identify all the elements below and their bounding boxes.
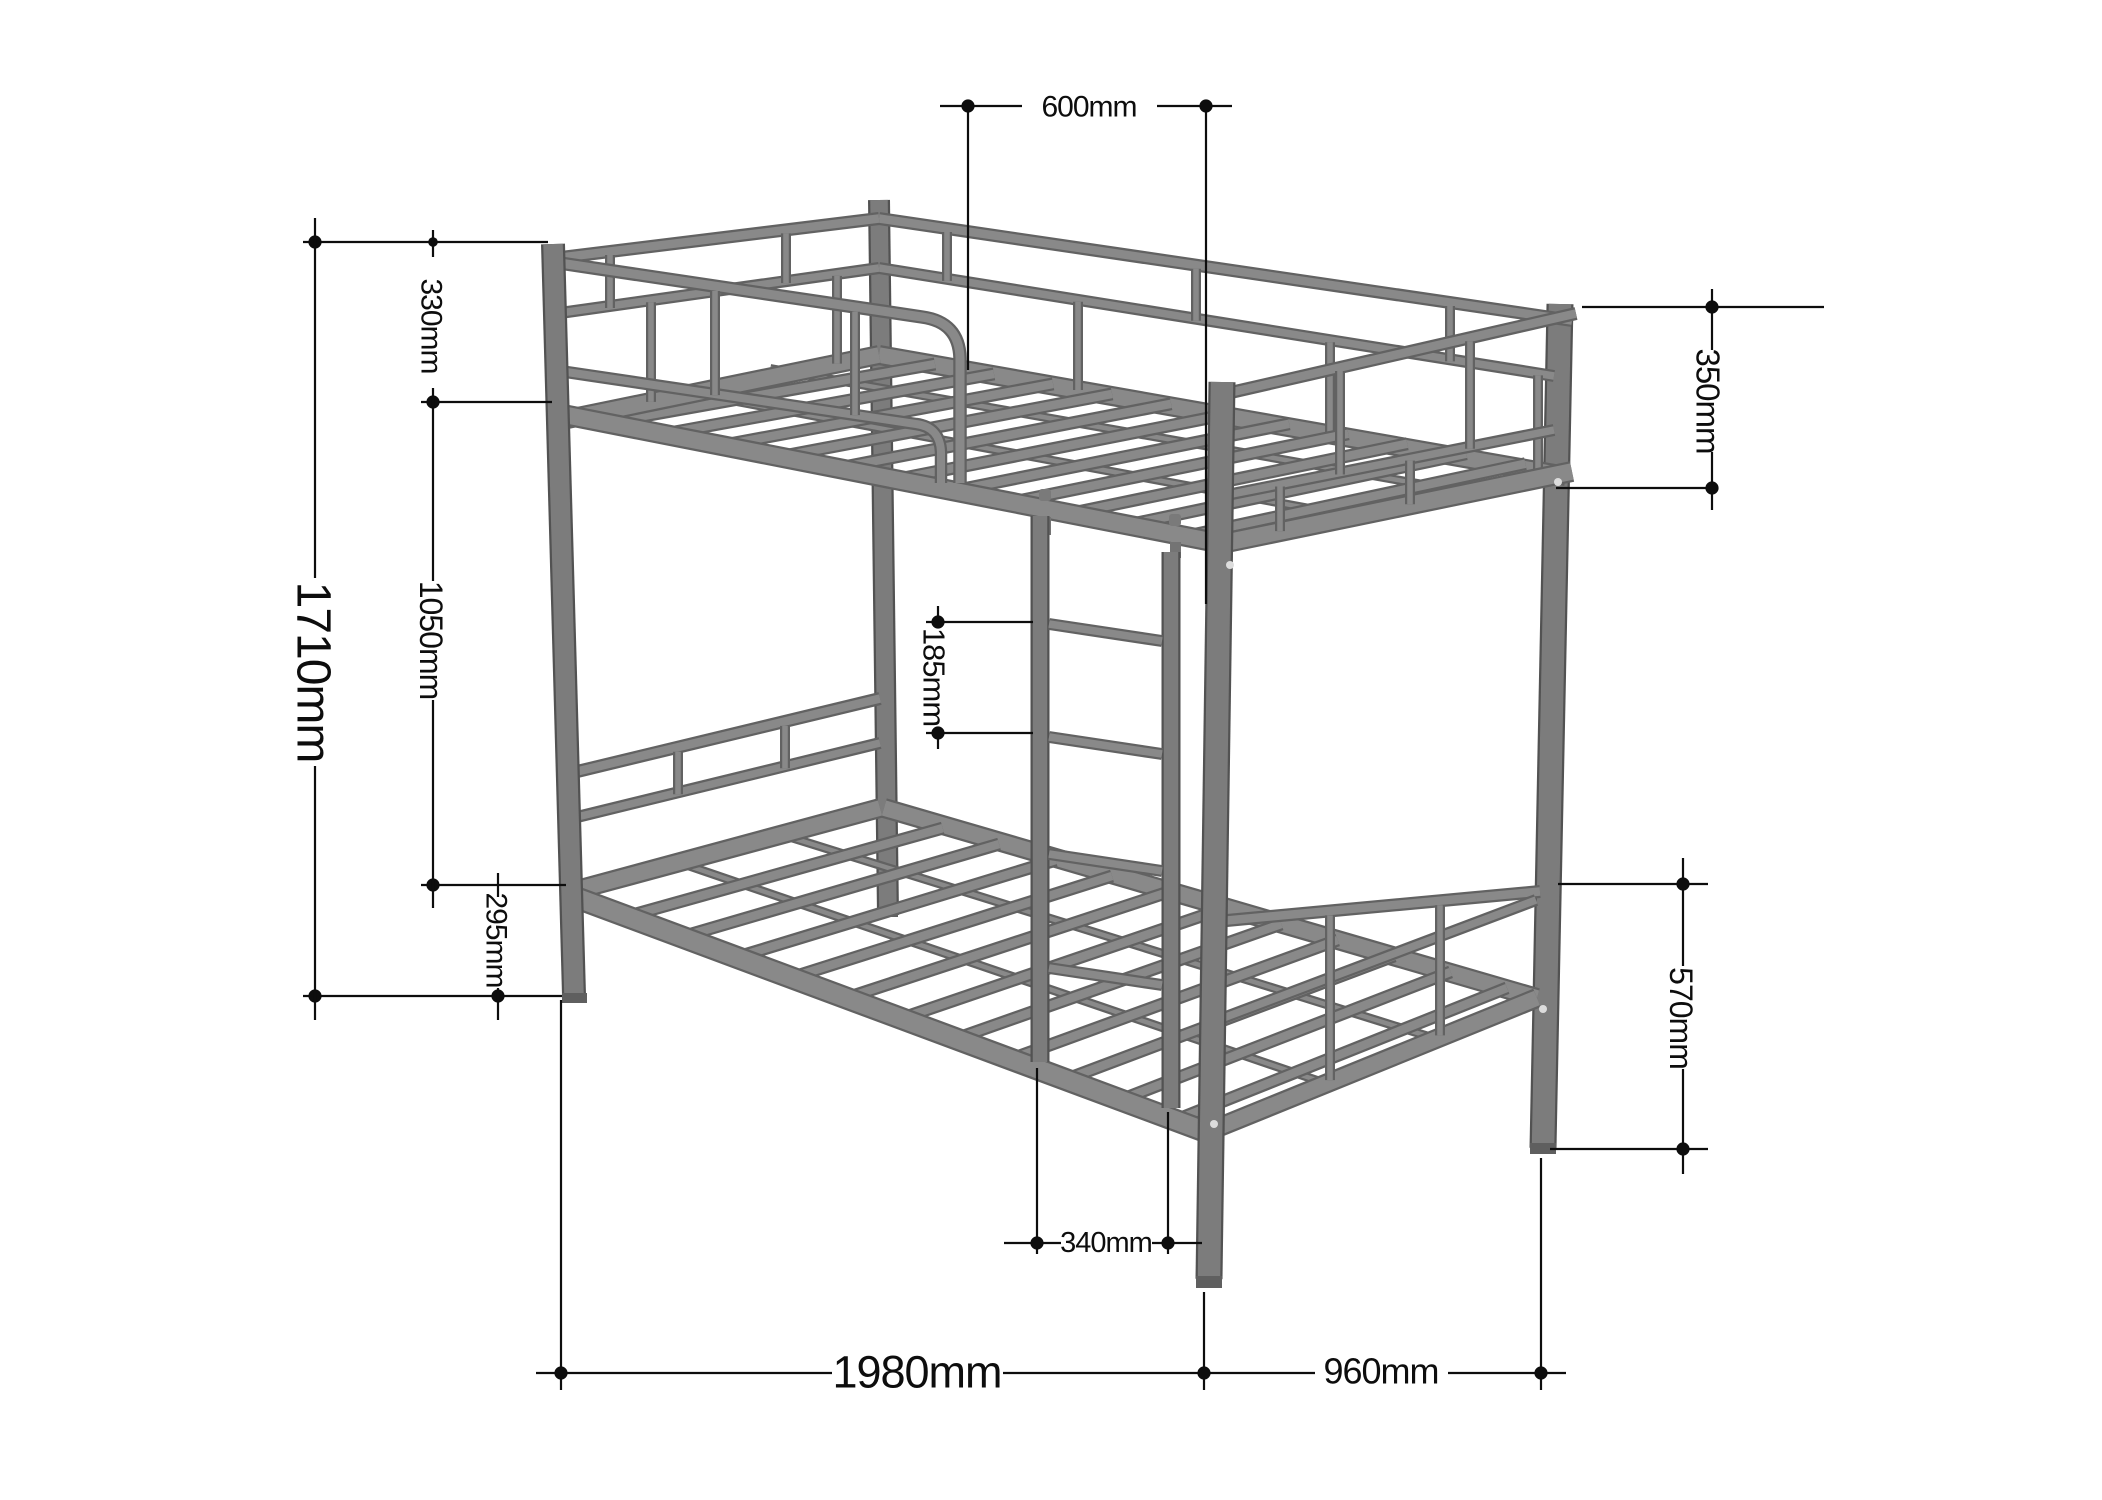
svg-text:1710mm: 1710mm bbox=[287, 582, 340, 763]
svg-text:185mm: 185mm bbox=[917, 628, 952, 726]
svg-text:295mm: 295mm bbox=[480, 892, 513, 987]
svg-text:340mm: 340mm bbox=[1060, 1227, 1152, 1259]
svg-text:960mm: 960mm bbox=[1323, 1351, 1438, 1392]
svg-text:1050mm: 1050mm bbox=[413, 581, 449, 700]
svg-text:1980mm: 1980mm bbox=[832, 1347, 1001, 1398]
svg-text:570mm: 570mm bbox=[1663, 967, 1699, 1069]
svg-text:600mm: 600mm bbox=[1041, 91, 1136, 124]
svg-text:330mm: 330mm bbox=[415, 278, 448, 373]
svg-text:350mm: 350mm bbox=[1690, 348, 1727, 453]
